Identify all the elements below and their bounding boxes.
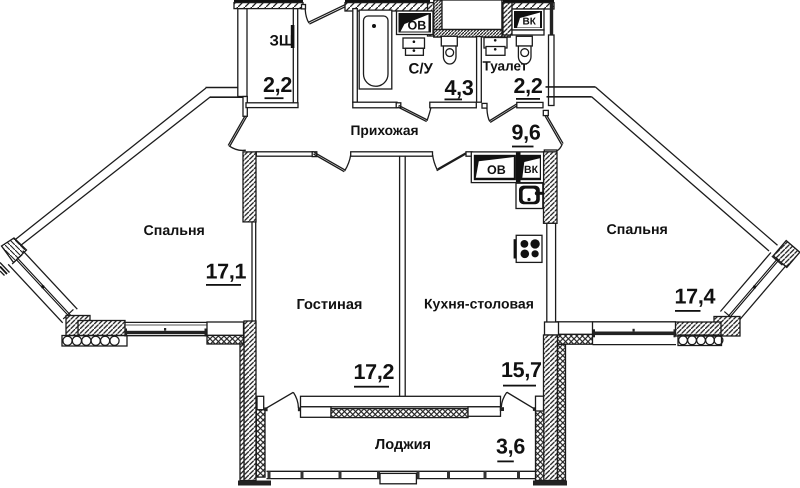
- svg-text:ЗШ: ЗШ: [270, 32, 294, 49]
- svg-text:17,2: 17,2: [354, 360, 395, 384]
- svg-text:Лоджия: Лоджия: [375, 437, 431, 453]
- svg-text:Гостиная: Гостиная: [297, 297, 363, 313]
- svg-text:Кухня-столовая: Кухня-столовая: [424, 296, 534, 312]
- svg-text:4,3: 4,3: [445, 76, 474, 100]
- svg-text:17,4: 17,4: [675, 285, 716, 309]
- svg-text:Прихожая: Прихожая: [351, 123, 419, 138]
- svg-text:ВК: ВК: [524, 164, 539, 176]
- svg-text:ВК: ВК: [523, 17, 537, 28]
- svg-text:2,2: 2,2: [514, 74, 543, 98]
- svg-text:ОВ: ОВ: [408, 19, 427, 33]
- svg-text:Спальня: Спальня: [144, 223, 205, 239]
- svg-text:3,6: 3,6: [496, 435, 525, 459]
- svg-text:С/У: С/У: [409, 61, 434, 78]
- svg-text:17,1: 17,1: [206, 260, 247, 284]
- svg-text:Туалет: Туалет: [483, 59, 528, 74]
- svg-text:Спальня: Спальня: [607, 222, 668, 238]
- svg-text:15,7: 15,7: [501, 358, 542, 382]
- svg-text:2,2: 2,2: [263, 73, 292, 97]
- svg-text:ОВ: ОВ: [487, 163, 506, 177]
- svg-text:9,6: 9,6: [512, 121, 541, 145]
